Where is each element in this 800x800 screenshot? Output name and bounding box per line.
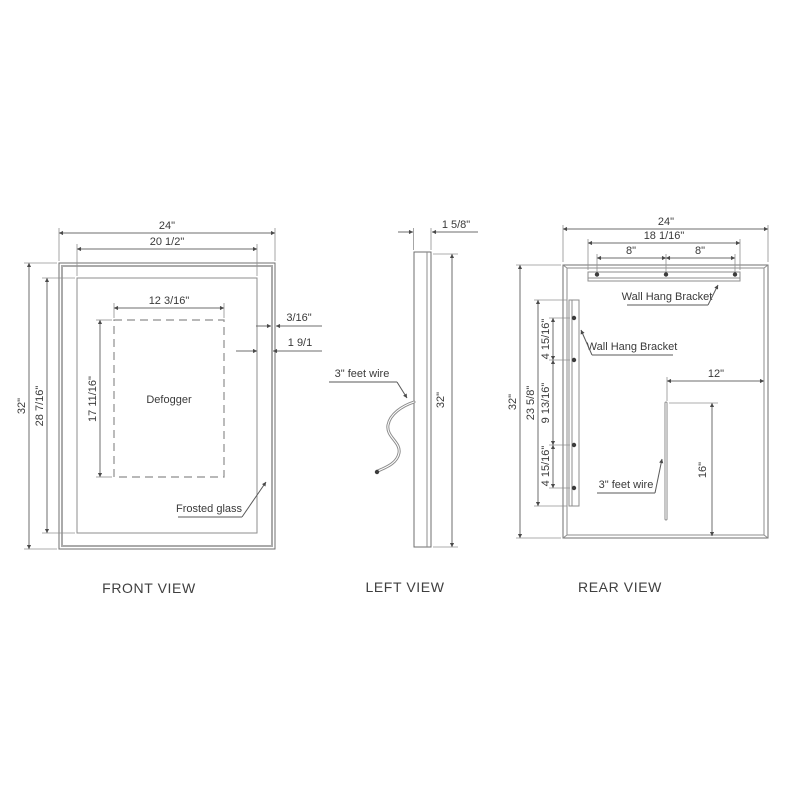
dim-frame-width: 1 9/1 (288, 337, 312, 349)
bracket-screw (572, 443, 576, 447)
dim-seg-mid: 9 13/16" (540, 383, 552, 424)
dim-defogger-height: 17 11/16" (87, 376, 99, 422)
front-view: Defogger 24" 20 1/2" 12 3/16" 32" 28 7/1… (16, 220, 322, 596)
dim-seg-top: 4 15/16" (540, 319, 552, 360)
rear-wire-label: 3" feet wire (599, 479, 654, 491)
frosted-glass-label: Frosted glass (176, 503, 243, 515)
dim-rear-width: 24" (658, 216, 674, 228)
left-view: 1 5/8" 32" 3" feet wire LEFT VIEW (329, 219, 478, 595)
left-bracket (569, 300, 579, 506)
dim-left-depth: 1 5/8" (442, 219, 470, 231)
dim-hole-span-right: 8" (695, 245, 705, 257)
left-view-body (414, 252, 431, 547)
bracket-screw (595, 272, 599, 276)
dim-bracket-height: 23 5/8" (525, 386, 537, 421)
dim-hole-span-left: 8" (626, 245, 636, 257)
bracket-screw (664, 272, 668, 276)
technical-drawing-svg: Defogger 24" 20 1/2" 12 3/16" 32" 28 7/1… (0, 0, 800, 800)
left-wire-leader (397, 382, 407, 398)
dim-front-glass-width: 20 1/2" (150, 236, 185, 248)
bracket-screw (733, 272, 737, 276)
dim-rear-height: 32" (507, 394, 519, 410)
dim-wire-offset: 12" (708, 368, 724, 380)
rear-view-title: REAR VIEW (578, 579, 662, 595)
left-bracket-label: Wall Hang Bracket (587, 341, 678, 353)
dim-defogger-width: 12 3/16" (149, 295, 190, 307)
rear-wire-leader (655, 459, 662, 493)
left-wire-label: 3" feet wire (335, 368, 390, 380)
dim-front-height: 32" (16, 398, 28, 414)
dim-left-height: 32" (435, 392, 447, 408)
rear-view: 24" 18 1/16" 8" 8" 32" 23 5/8" 4 15/16" (507, 216, 768, 595)
bracket-screw (572, 358, 576, 362)
top-bracket (588, 272, 740, 281)
top-bracket-label: Wall Hang Bracket (622, 291, 713, 303)
dim-glass-thickness: 3/16" (286, 312, 311, 324)
wire-end-dot (375, 470, 379, 474)
drawing-canvas: Defogger 24" 20 1/2" 12 3/16" 32" 28 7/1… (0, 0, 800, 800)
dim-wire-drop: 16" (697, 462, 709, 478)
defogger-label: Defogger (146, 394, 192, 406)
dim-front-glass-height: 28 7/16" (34, 386, 46, 427)
bracket-screw (572, 486, 576, 490)
front-view-title: FRONT VIEW (102, 580, 196, 596)
dim-seg-bottom: 4 15/16" (540, 446, 552, 487)
dim-bracket-width: 18 1/16" (644, 230, 685, 242)
left-view-title: LEFT VIEW (365, 579, 444, 595)
frosted-glass-leader (242, 482, 266, 517)
bracket-screw (572, 316, 576, 320)
dim-front-width: 24" (159, 220, 175, 232)
